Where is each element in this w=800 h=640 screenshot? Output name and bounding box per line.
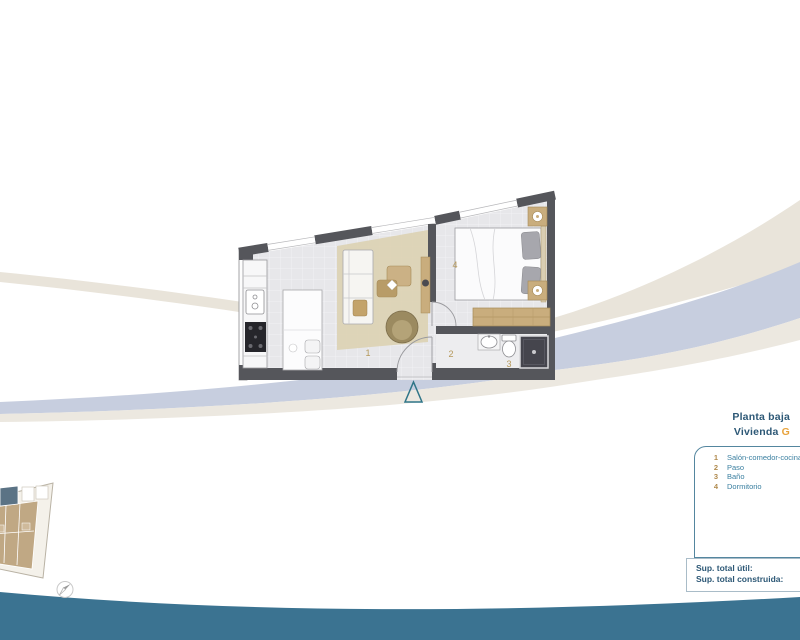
toilet-tank	[502, 335, 516, 341]
sofa	[343, 250, 373, 324]
floor-title: Planta baja	[590, 410, 790, 425]
wardrobe	[473, 308, 550, 326]
legend-item: 4Dormitorio	[709, 482, 800, 492]
legend-item: 1Salón-comedor-cocina	[709, 453, 800, 463]
entrance-marker-icon	[405, 382, 422, 402]
legend-item: 3Baño	[709, 472, 800, 482]
bottom-wall-right	[432, 368, 555, 380]
sink	[246, 290, 264, 314]
highlighted-unit	[0, 486, 18, 506]
toilet-bowl	[503, 341, 516, 357]
useful-area-label: Sup. total útil:	[696, 563, 800, 574]
legend-list: 1Salón-comedor-cocina 2Paso 3Baño 4Dormi…	[695, 453, 800, 491]
legend-panel: 1Salón-comedor-cocina 2Paso 3Baño 4Dormi…	[694, 446, 800, 558]
unit-prefix: Vivienda	[734, 426, 779, 438]
title-block: Planta baja Vivienda G	[590, 410, 790, 440]
armchair	[386, 311, 418, 343]
unit-title: Vivienda G	[590, 425, 790, 440]
brochure-page: 1 2 3 4 Planta baja Vivienda	[0, 0, 800, 640]
tv-unit	[421, 257, 430, 313]
legend-item: 2Paso	[709, 463, 800, 473]
room-number-3: 3	[506, 359, 511, 369]
footer-band	[0, 592, 800, 640]
room-number-4: 4	[452, 260, 457, 270]
dining-set	[283, 290, 322, 370]
room-number-2: 2	[448, 349, 453, 359]
built-area-label: Sup. total construida:	[696, 574, 800, 585]
floor-plan: 1 2 3 4	[225, 180, 565, 410]
bathroom-sink	[481, 336, 497, 348]
areas-box: Sup. total útil: Sup. total construida:	[686, 558, 800, 592]
unit-letter: G	[782, 426, 790, 438]
kitchen-counter	[243, 260, 267, 368]
room-number-1: 1	[365, 348, 370, 358]
site-plan-thumbnail	[0, 477, 60, 587]
compass-icon	[52, 578, 78, 602]
